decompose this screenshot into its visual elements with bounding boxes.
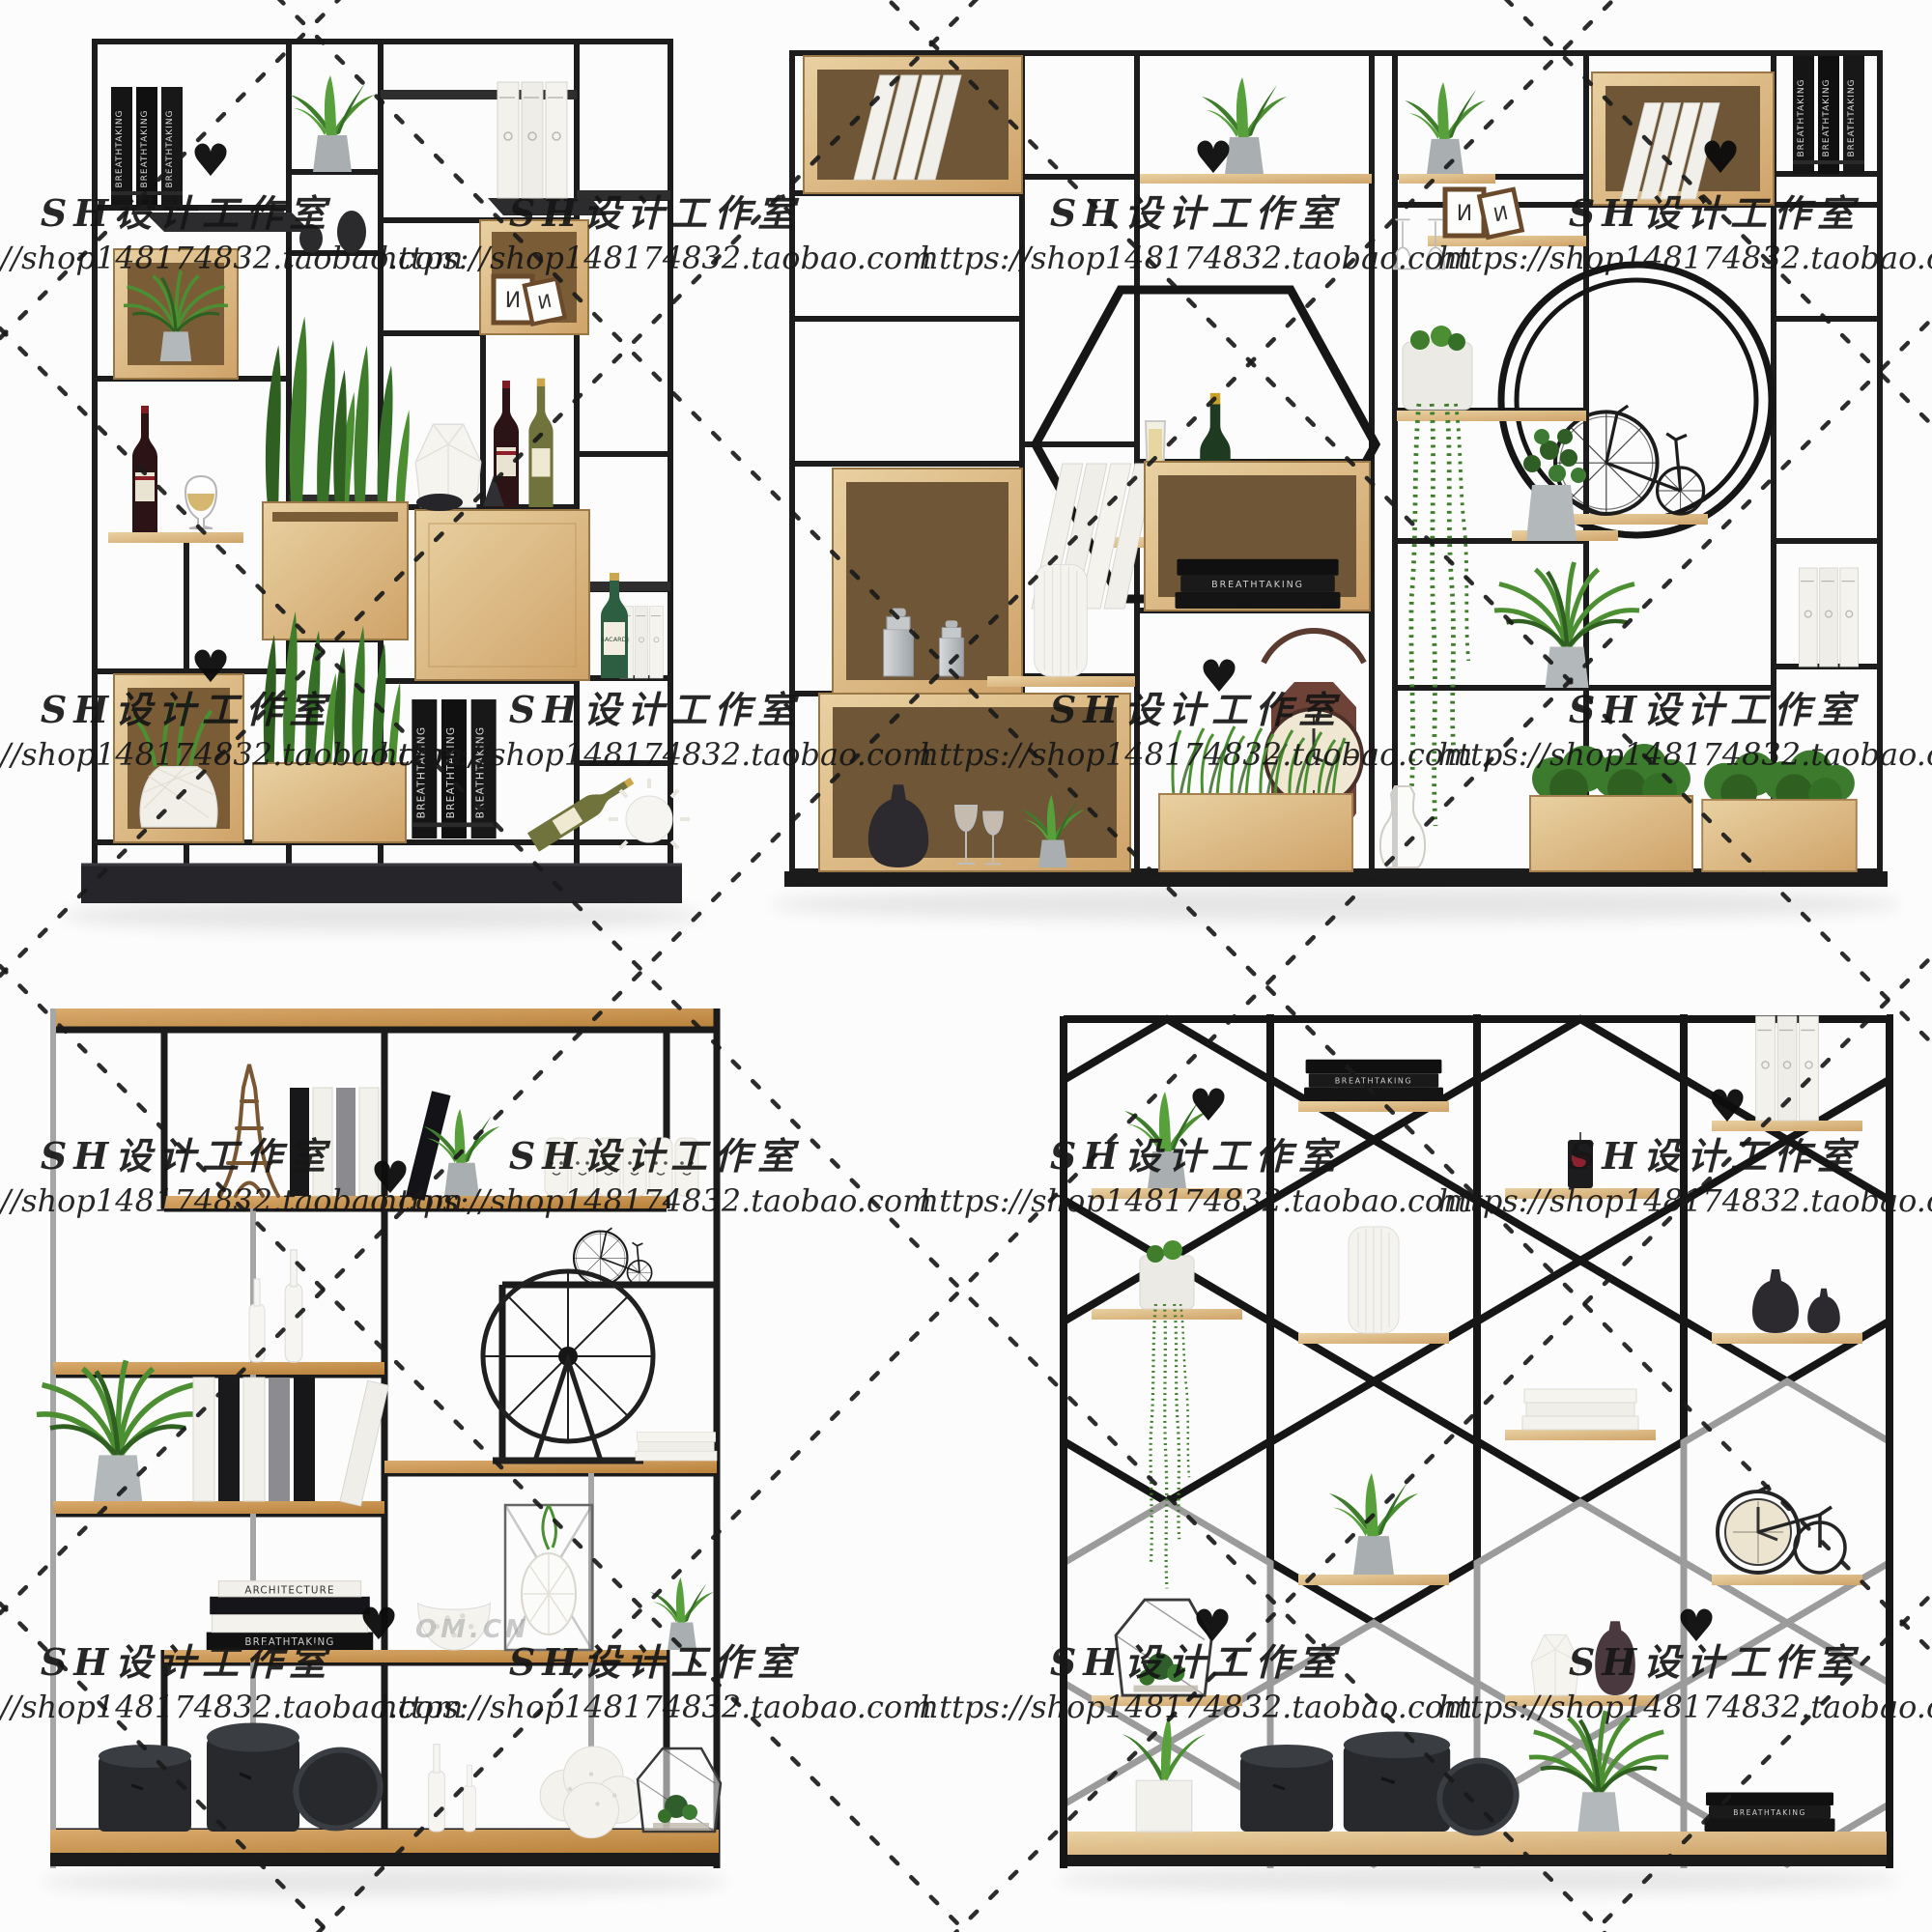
dark-ceramic-vases: [299, 211, 366, 253]
wood-shelf-board: [108, 532, 243, 543]
wood-box-shakers: [833, 469, 1022, 694]
shelf-base-bar: [50, 1853, 719, 1866]
hanging-vine-pot: [1140, 1240, 1194, 1588]
wood-box-white-books-right: [1592, 72, 1774, 205]
book-row: [193, 1378, 388, 1506]
wood-shelf-board: [1140, 174, 1372, 184]
wood-cube-box-plant: [114, 249, 238, 379]
large-wood-panel-box: [415, 510, 589, 680]
shelf-base-bar: [784, 871, 1888, 887]
wood-shelf-board: [53, 1362, 384, 1375]
circle-wood-shelf: [1567, 514, 1708, 525]
wood-cube-box-grass-pot: [114, 674, 243, 842]
wood-base-board: [50, 1830, 719, 1853]
wood-top-board: [50, 1009, 719, 1028]
shelf-unit-bottom-left: [37, 1009, 721, 1868]
shelves-scene: BACARDI BREATHTAKING BREATHTAKING BREATH…: [0, 0, 1932, 1932]
floating-dark-panel: [488, 198, 607, 215]
wood-shelf-board: [987, 676, 1135, 687]
big-wood-box-bottles: [819, 694, 1130, 871]
snake-plant-planter: [263, 317, 410, 640]
wood-cube-box-frames: [480, 220, 588, 334]
shelf-unit-top-right: [784, 50, 1888, 887]
hanging-vine-pot: [1397, 326, 1586, 826]
shelf-base-platform: [81, 865, 682, 903]
shelf-unit-top-left: [81, 39, 690, 903]
shelf-base-bar: [1067, 1855, 1887, 1866]
wood-box-white-books: [804, 56, 1022, 193]
wood-shelf-board: [164, 1650, 667, 1662]
book-row: [290, 1088, 451, 1201]
wood-box-black-books: [1145, 462, 1370, 611]
wood-shelf-board: [53, 1501, 384, 1514]
leaning-box-lid: [286, 1739, 390, 1838]
dark-bowl: [416, 494, 463, 511]
wood-shelf-board: [1399, 174, 1495, 184]
floating-dark-panel: [145, 213, 311, 232]
product-collage: BACARDI BREATHTAKING BREATHTAKING BREATH…: [0, 0, 1932, 1932]
shelf-unit-bottom-right: [1064, 898, 1890, 1932]
